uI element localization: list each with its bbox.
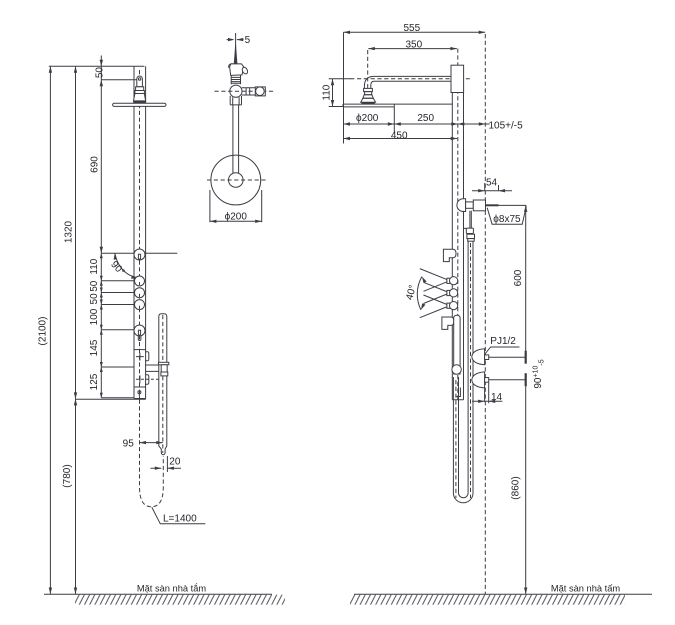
svg-text:1320: 1320: [64, 220, 75, 243]
svg-text:Mặt sàn nhà tấm: Mặt sàn nhà tấm: [551, 583, 621, 593]
svg-text:ϕ200: ϕ200: [225, 211, 248, 222]
svg-text:50: 50: [89, 293, 100, 305]
svg-text:125: 125: [89, 373, 100, 390]
svg-text:(860): (860): [511, 476, 522, 499]
svg-text:20: 20: [169, 457, 181, 468]
svg-text:690: 690: [90, 156, 101, 173]
svg-text:145: 145: [89, 339, 100, 356]
svg-text:110: 110: [322, 84, 333, 100]
svg-text:555: 555: [403, 23, 420, 34]
svg-text:350: 350: [405, 39, 422, 50]
svg-text:5: 5: [245, 35, 251, 46]
svg-text:(780): (780): [62, 464, 73, 487]
svg-text:100: 100: [89, 308, 100, 325]
svg-text:PJ1/2: PJ1/2: [490, 336, 516, 347]
svg-text:105+/-5: 105+/-5: [489, 120, 524, 131]
svg-text:600: 600: [513, 269, 524, 286]
svg-text:250: 250: [417, 113, 434, 124]
svg-text:450: 450: [391, 131, 408, 142]
svg-text:ϕ8x75: ϕ8x75: [493, 214, 521, 225]
svg-text:95: 95: [123, 439, 135, 450]
svg-text:14: 14: [491, 392, 503, 403]
svg-text:L=1400: L=1400: [163, 514, 197, 525]
svg-text:(2100): (2100): [38, 317, 49, 346]
svg-text:ϕ200: ϕ200: [356, 113, 379, 124]
svg-text:50: 50: [94, 67, 105, 79]
svg-text:Mặt sàn nhà tắm: Mặt sàn nhà tắm: [137, 583, 207, 593]
svg-text:110: 110: [89, 258, 100, 274]
svg-text:50: 50: [89, 280, 100, 292]
svg-text:54: 54: [486, 177, 498, 188]
